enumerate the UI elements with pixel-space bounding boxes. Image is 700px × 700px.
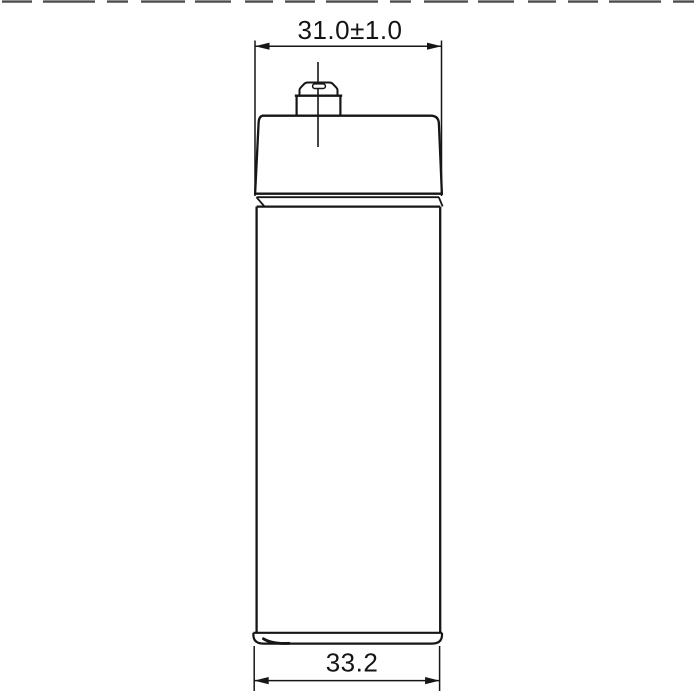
dimension-body-width: 33.2 xyxy=(254,646,439,691)
terminal-vent-slot xyxy=(313,84,326,89)
battery-body xyxy=(253,207,442,644)
battery-cap xyxy=(255,116,443,207)
arrowhead-top-right xyxy=(427,43,442,50)
cap-seam-left-chamfer xyxy=(256,197,264,206)
drawing-page: 31.0±1.0 xyxy=(0,0,700,700)
dimension-cap-width: 31.0±1.0 xyxy=(255,15,442,196)
dimension-body-width-label: 33.2 xyxy=(326,648,379,678)
terminal xyxy=(295,62,342,147)
cap-outline xyxy=(255,116,442,194)
body-outline xyxy=(257,207,441,633)
arrowhead-bottom-left xyxy=(254,677,269,684)
dimension-cap-width-label: 31.0±1.0 xyxy=(297,15,402,45)
arrowhead-bottom-right xyxy=(425,677,440,684)
battery-technical-drawing: 31.0±1.0 xyxy=(0,0,700,700)
cap-seam-right-chamfer xyxy=(439,197,443,206)
arrowhead-top-left xyxy=(255,43,270,50)
